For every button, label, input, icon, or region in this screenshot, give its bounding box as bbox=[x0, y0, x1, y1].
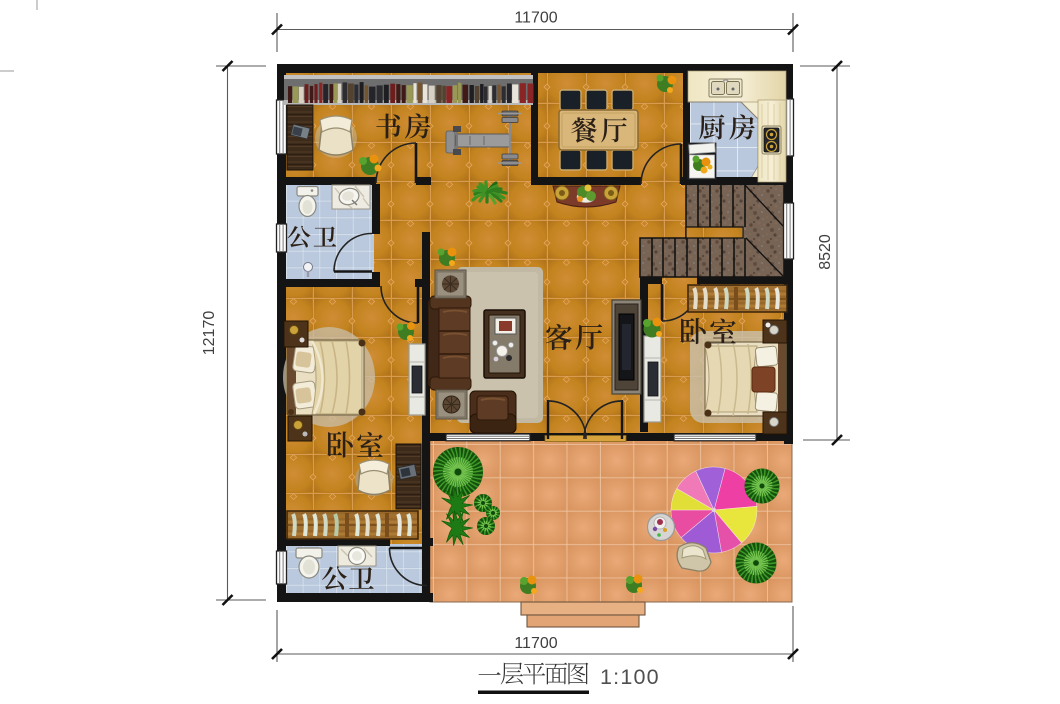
svg-text:11700: 11700 bbox=[514, 10, 557, 27]
svg-text:1:100: 1:100 bbox=[600, 665, 660, 689]
svg-text:12170: 12170 bbox=[201, 311, 218, 356]
svg-text:8520: 8520 bbox=[817, 234, 834, 270]
svg-text:11700: 11700 bbox=[514, 635, 557, 652]
